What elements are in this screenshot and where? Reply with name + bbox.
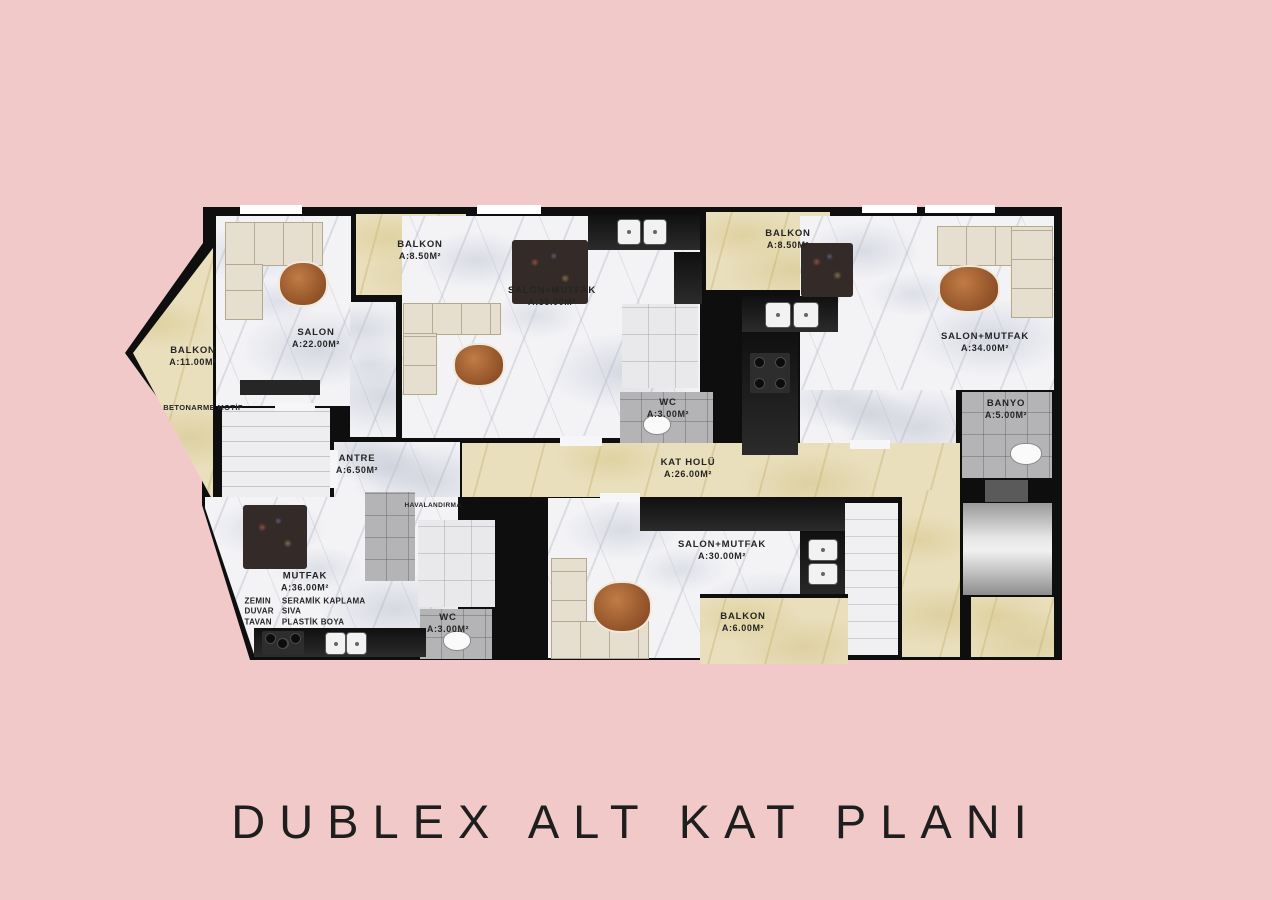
- kitchen-table: [243, 505, 307, 569]
- room-name: WC: [439, 612, 456, 623]
- room-area: A:35.00M²: [508, 297, 596, 309]
- label-balkon-top: BALKON A:8.50M²: [397, 239, 442, 263]
- label-betonarme: BETONARME MOTİF: [163, 403, 243, 413]
- floor-plan-page: SALON A:22.00M² BALKON A:8.50M² SALON+MU…: [0, 0, 1272, 900]
- room-salon-mutfak-right-lower: [800, 390, 956, 443]
- label-balkon-bottom: BALKON A:6.00M²: [720, 611, 765, 635]
- finish-key: DUVAR: [245, 607, 274, 617]
- room-elevator: [963, 503, 1052, 595]
- coffee-table: [453, 343, 505, 387]
- label-wc-bottom: WC A:3.00M²: [427, 612, 469, 636]
- tv-console: [240, 380, 320, 395]
- room-area: A:5.00M²: [985, 410, 1027, 422]
- window: [477, 205, 541, 214]
- elevator-shaft: [985, 480, 1028, 502]
- room-area: A:6.50M²: [336, 465, 378, 477]
- sofa: [1011, 226, 1053, 318]
- dining-table: [592, 581, 652, 633]
- floor-plan: SALON A:22.00M² BALKON A:8.50M² SALON+MU…: [125, 203, 1065, 673]
- label-salon-mutfak-right: SALON+MUTFAK A:34.00M²: [941, 331, 1029, 355]
- finish-value: SERAMİK KAPLAMA: [282, 596, 366, 606]
- stove-icon: [750, 353, 790, 393]
- finish-value: PLASTİK BOYA: [282, 617, 366, 627]
- finish-key: ZEMIN: [245, 596, 274, 606]
- window: [862, 205, 917, 213]
- sink: [325, 632, 346, 655]
- room-name: KAT HOLÜ: [661, 457, 716, 468]
- sofa: [403, 303, 501, 335]
- room-bath-white: [418, 520, 495, 607]
- label-antre: ANTRE A:6.50M²: [336, 453, 378, 477]
- room-area: A:36.00M²: [245, 583, 366, 595]
- sink: [346, 632, 367, 655]
- room-name: BETONARME MOTİF: [163, 403, 243, 412]
- fridge: [674, 252, 702, 304]
- room-area: A:3.00M²: [427, 624, 469, 636]
- door-opening: [560, 436, 602, 446]
- sink: [643, 219, 667, 245]
- label-wc-mid: WC A:3.00M²: [647, 397, 689, 421]
- room-area: A:8.50M²: [765, 240, 810, 252]
- room-corridor-column: [902, 490, 960, 657]
- room-name: SALON+MUTFAK: [678, 539, 766, 550]
- room-name: SALON: [297, 327, 334, 338]
- room-area: A:22.00M²: [292, 339, 340, 351]
- room-name: WC: [659, 397, 676, 408]
- room-name: SALON+MUTFAK: [508, 285, 596, 296]
- room-name: MUTFAK: [283, 570, 327, 581]
- room-beige-bottom-right: [971, 597, 1054, 657]
- finish-value: SIVA: [282, 607, 366, 617]
- window: [240, 205, 302, 214]
- sink: [808, 539, 838, 561]
- room-area: A:30.00M²: [678, 551, 766, 563]
- sink: [765, 302, 791, 328]
- room-name: ANTRE: [339, 453, 376, 464]
- sink: [808, 563, 838, 585]
- label-mutfak: MUTFAK A:36.00M² ZEMIN SERAMİK KAPLAMA D…: [245, 570, 366, 627]
- sink: [793, 302, 819, 328]
- room-name: HAVALANDIRMA: [405, 502, 462, 509]
- dining-table: [938, 265, 1000, 313]
- window: [925, 205, 995, 213]
- room-area: A:11.00M²: [169, 357, 216, 369]
- page-title: DUBLEX ALT KAT PLANI: [0, 794, 1272, 849]
- sofa: [403, 333, 437, 395]
- label-banyo: BANYO A:5.00M²: [985, 398, 1027, 422]
- room-area: A:8.50M²: [397, 251, 442, 263]
- room-shower-mid: [622, 304, 698, 388]
- label-salon-mutfak-mid: SALON+MUTFAK A:35.00M²: [508, 285, 596, 309]
- finishes-table: ZEMIN SERAMİK KAPLAMA DUVAR SIVA TAVAN P…: [245, 596, 366, 627]
- label-balkon-left: BALKON A:11.00M²: [169, 345, 216, 369]
- room-name: BANYO: [987, 398, 1025, 409]
- label-salon: SALON A:22.00M²: [292, 327, 340, 351]
- room-area: A:26.00M²: [661, 469, 716, 481]
- door-opening: [275, 403, 315, 411]
- room-area: A:3.00M²: [647, 409, 689, 421]
- label-salon-mutfak-bottom: SALON+MUTFAK A:30.00M²: [678, 539, 766, 563]
- sofa: [937, 226, 1015, 266]
- sofa: [225, 264, 263, 320]
- room-name: SALON+MUTFAK: [941, 331, 1029, 342]
- room-name: BALKON: [170, 345, 215, 356]
- sofa: [225, 222, 323, 266]
- finish-key: TAVAN: [245, 617, 274, 627]
- room-name: BALKON: [765, 228, 810, 239]
- dining-table: [278, 261, 328, 307]
- kitchen-counter-bottom-top: [640, 498, 845, 531]
- room-salon-extension: [350, 302, 396, 437]
- room-name: BALKON: [397, 239, 442, 250]
- label-havalandirma: HAVALANDIRMA: [405, 502, 462, 510]
- door-opening: [600, 493, 640, 502]
- stove-icon: [262, 631, 304, 655]
- label-kat-holu: KAT HOLÜ A:26.00M²: [661, 457, 716, 481]
- sink: [617, 219, 641, 245]
- door-opening: [850, 440, 890, 449]
- kitchen-counter-right-v: [742, 332, 798, 455]
- toilet-icon: [1010, 443, 1042, 465]
- room-entry-stairs: [222, 408, 330, 501]
- room-area: A:34.00M²: [941, 343, 1029, 355]
- label-balkon-right-top: BALKON A:8.50M²: [765, 228, 810, 252]
- room-area: A:6.00M²: [720, 623, 765, 635]
- room-name: BALKON: [720, 611, 765, 622]
